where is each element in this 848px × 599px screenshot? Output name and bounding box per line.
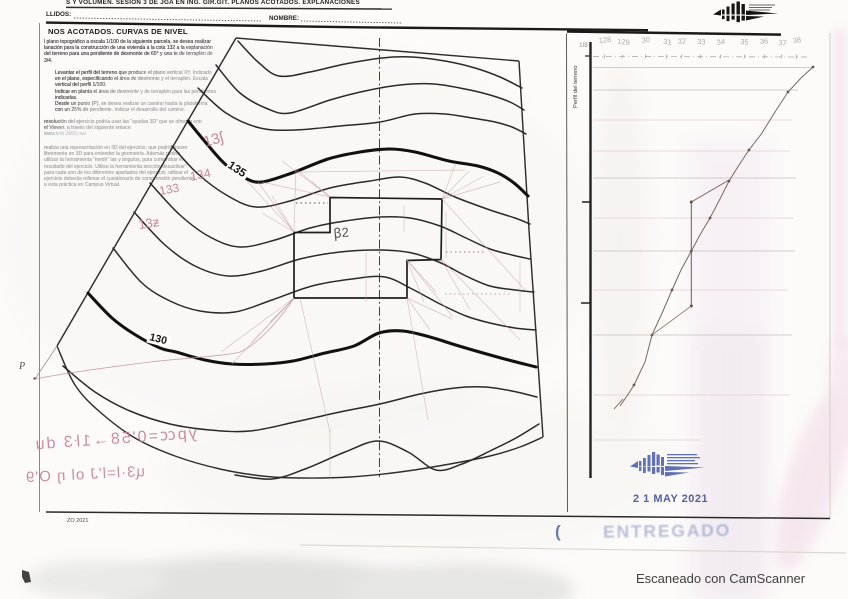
svg-text:Perfil del terreno: Perfil del terreno: [573, 65, 579, 108]
svg-text:128: 128: [598, 35, 611, 45]
svg-text:(: (: [555, 522, 561, 541]
svg-text:33: 33: [697, 37, 706, 46]
svg-text:32: 32: [677, 36, 686, 46]
svg-text:2 1 MAY 2021: 2 1 MAY 2021: [633, 493, 708, 505]
svg-text:129: 129: [617, 37, 630, 47]
svg-text:30: 30: [641, 35, 651, 45]
svg-text:ᶙ3·l=l'J ol ŋ O'9: ᶙ3·l=l'J ol ŋ O'9: [25, 463, 146, 486]
svg-text:36: 36: [760, 36, 769, 46]
svg-text:P: P: [18, 361, 25, 372]
svg-text:37: 37: [778, 38, 787, 48]
svg-text:35: 35: [740, 37, 749, 47]
svg-text:13ᵶ: 13ᵶ: [137, 214, 160, 232]
svg-text:Escaneado con CamScanner: Escaneado con CamScanner: [636, 571, 806, 586]
svg-text:38: 38: [792, 35, 801, 45]
svg-text:ZO 2021: ZO 2021: [67, 518, 88, 524]
svg-text:1ǀ8: 1ǀ8: [579, 42, 588, 49]
svg-text:ꞵ2: ꞵ2: [333, 224, 350, 242]
svg-text:ENTREGADO: ENTREGADO: [603, 520, 731, 542]
svg-text:34: 34: [716, 37, 725, 47]
svg-text:31: 31: [663, 37, 672, 47]
